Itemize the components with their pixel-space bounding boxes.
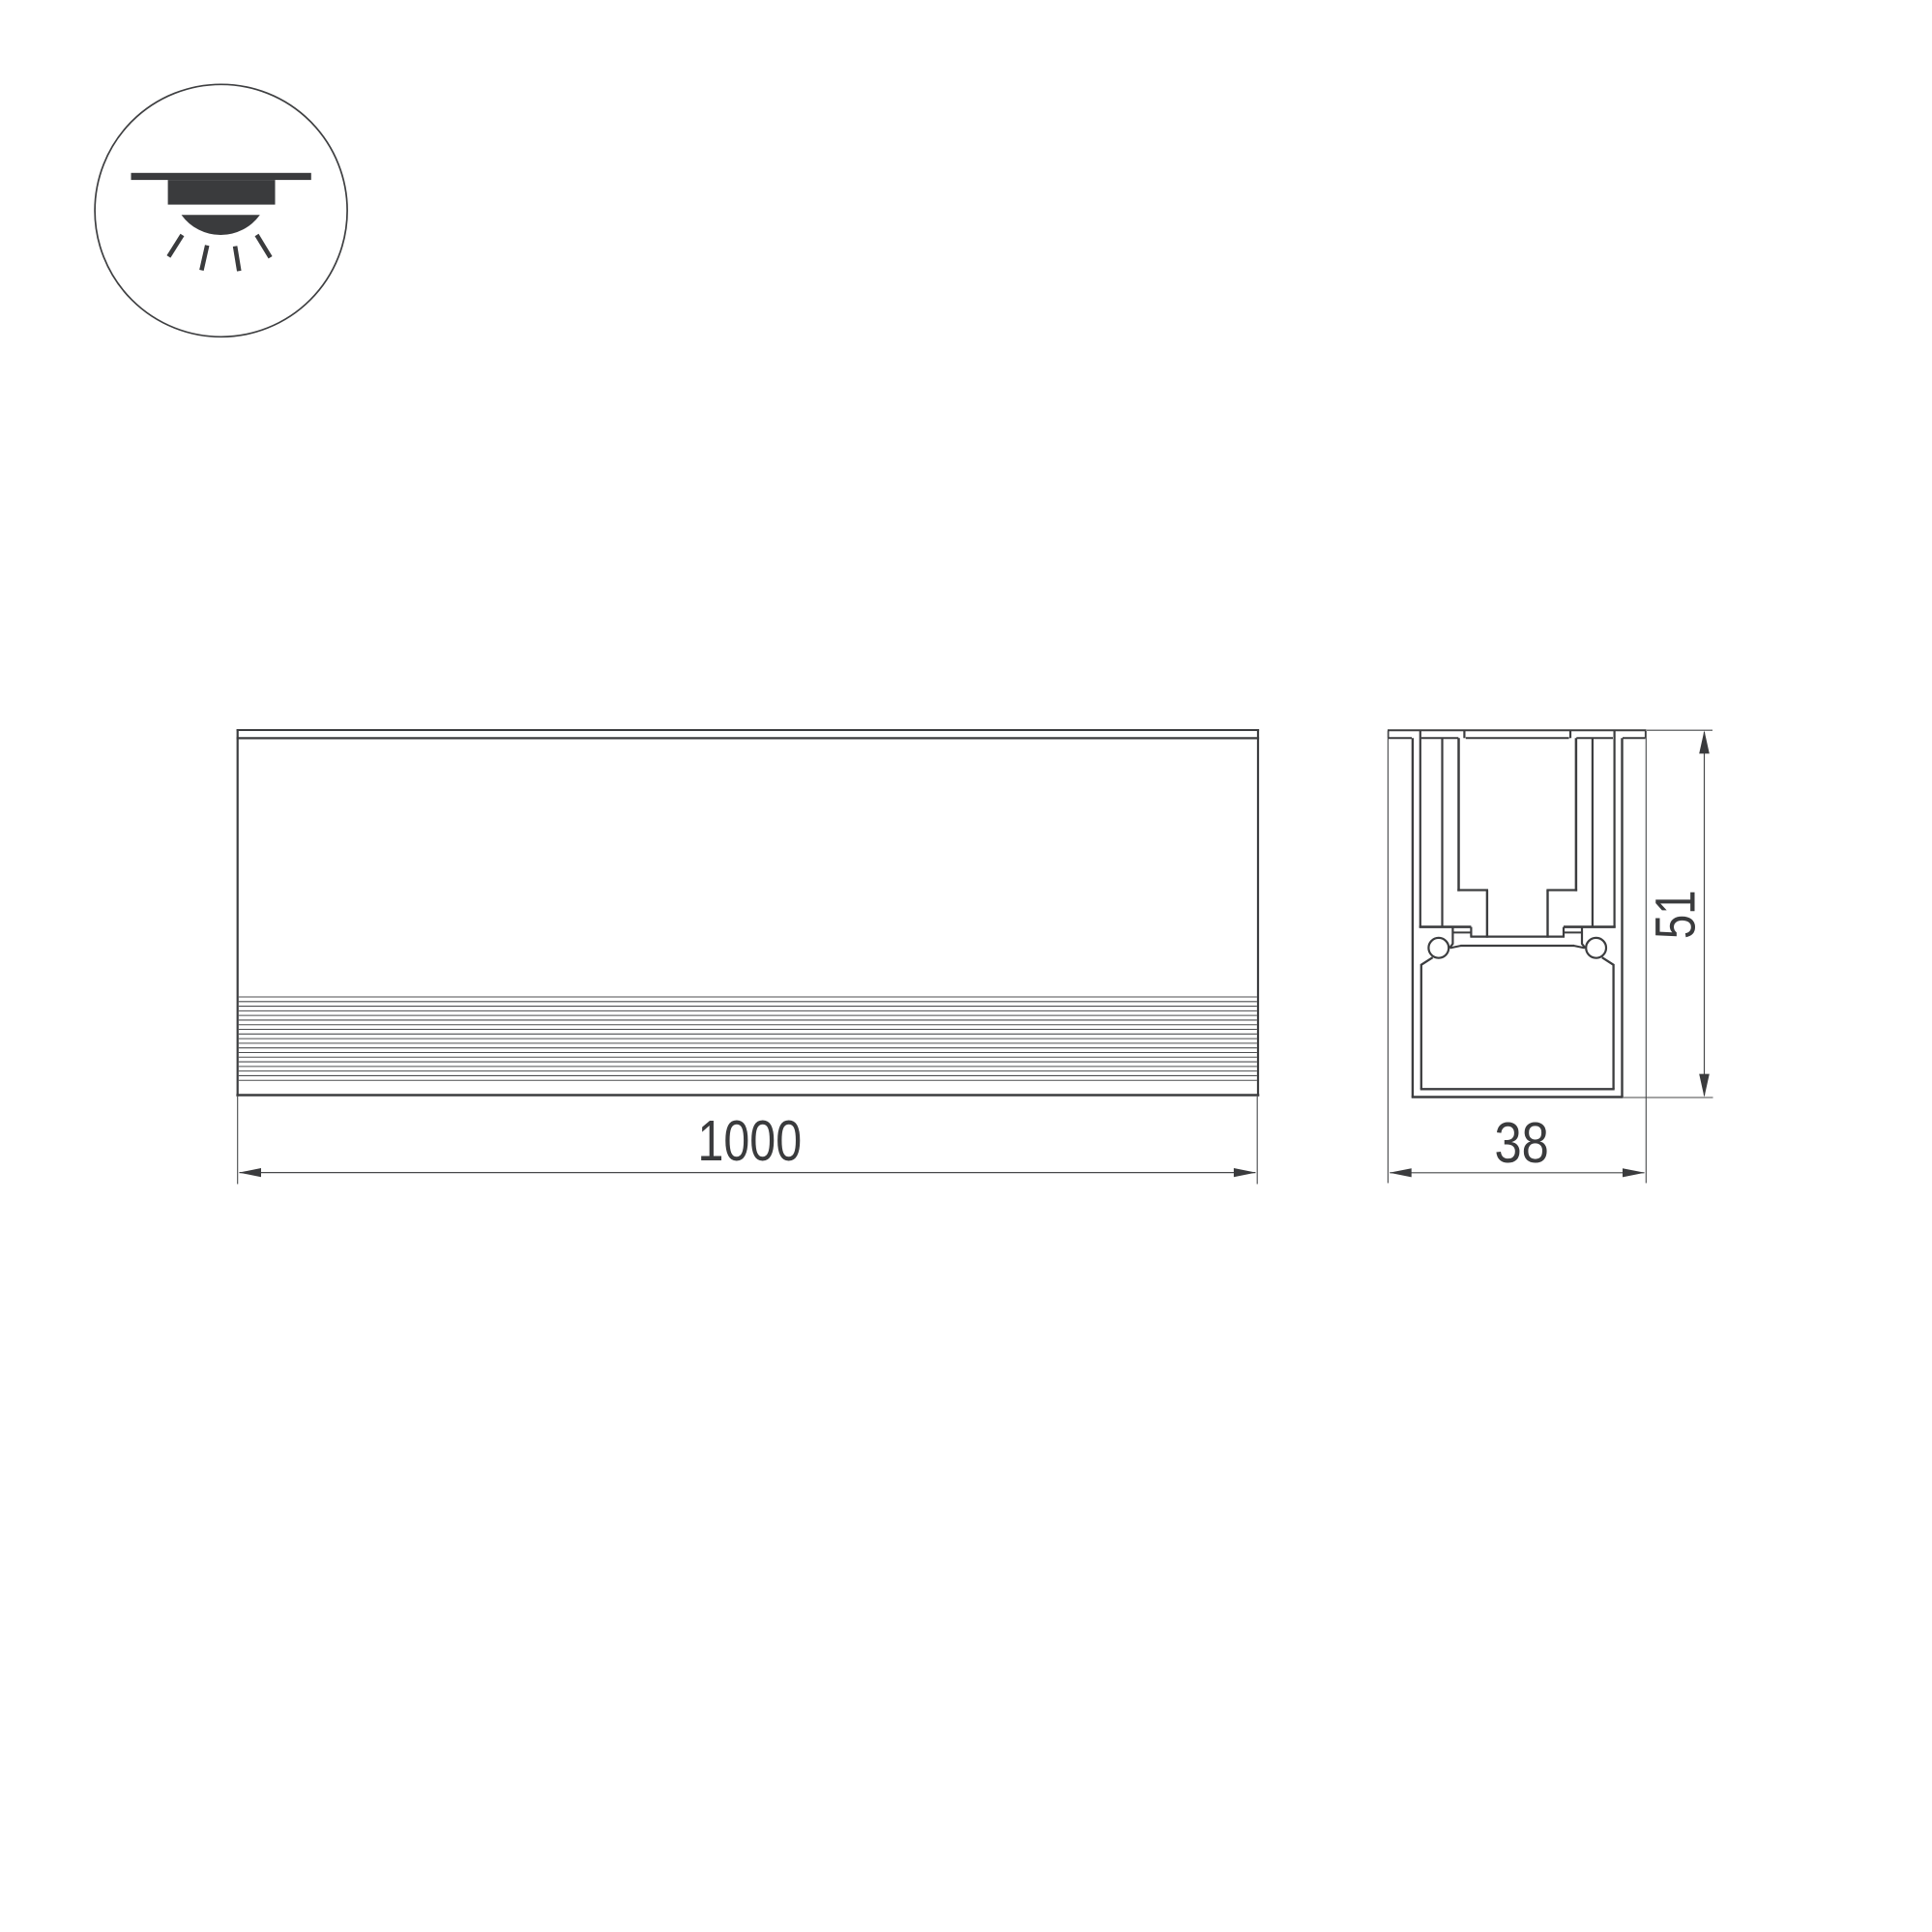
svg-text:38: 38 [1494, 1110, 1548, 1175]
svg-text:51: 51 [1645, 891, 1708, 939]
svg-text:1000: 1000 [697, 1109, 802, 1173]
